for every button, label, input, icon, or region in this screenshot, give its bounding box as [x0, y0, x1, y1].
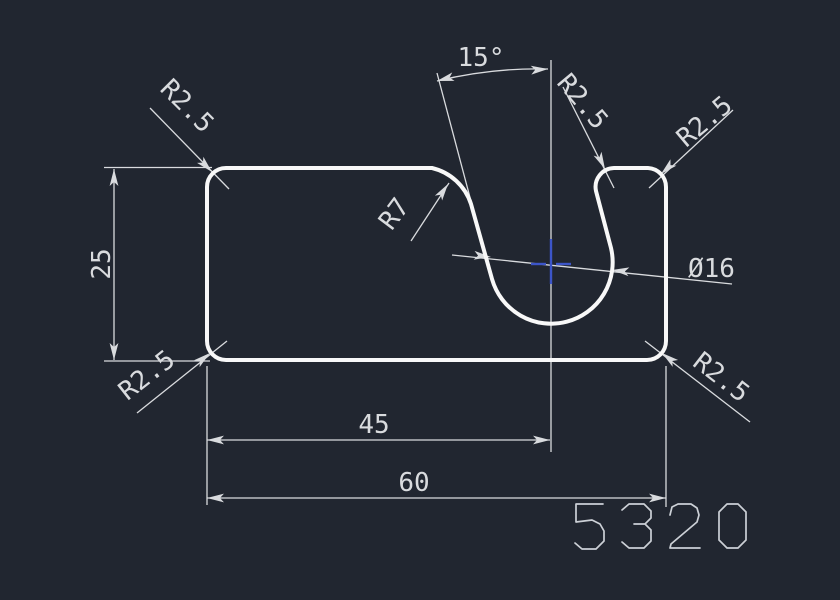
dim-45-text: 45	[358, 410, 389, 440]
arrowhead	[435, 182, 452, 201]
dimension-total-width: 60	[207, 468, 666, 502]
part-number-digit	[575, 504, 604, 549]
part-number-digit	[622, 504, 651, 548]
arrowhead	[531, 65, 549, 75]
part-number	[575, 504, 746, 549]
r25-top-left-text: R2.5	[154, 74, 219, 139]
part-number-digit	[719, 504, 746, 548]
r25-bottom-left-text: R2.5	[113, 345, 181, 407]
r7-text: R7	[373, 193, 416, 236]
part-number-digit	[670, 504, 700, 548]
r25-tab-text: R2.5	[671, 90, 738, 153]
dim-dia16-text: Ø16	[688, 254, 735, 284]
center-snap-marker	[531, 239, 571, 284]
dim-60-text: 60	[398, 468, 429, 498]
profile-outline	[207, 168, 666, 360]
cad-viewport[interactable]: 25 45 60 15° Ø16 R2.5 R7	[0, 0, 840, 600]
dim-15deg-text: 15°	[458, 43, 505, 73]
radius-leaders: R2.5 R7 R2.5 R2.5 R2.5 R2.5	[113, 68, 755, 422]
dimension-height: 25	[87, 169, 118, 360]
dimension-slot-diameter: Ø16	[452, 251, 735, 284]
extension-line-slot-angle	[437, 73, 472, 205]
cad-canvas[interactable]: 25 45 60 15° Ø16 R2.5 R7	[0, 0, 840, 600]
dimension-slot-angle: 15°	[436, 43, 548, 85]
dim-25-text: 25	[87, 248, 117, 279]
dimension-slot-center: 45	[207, 410, 550, 444]
